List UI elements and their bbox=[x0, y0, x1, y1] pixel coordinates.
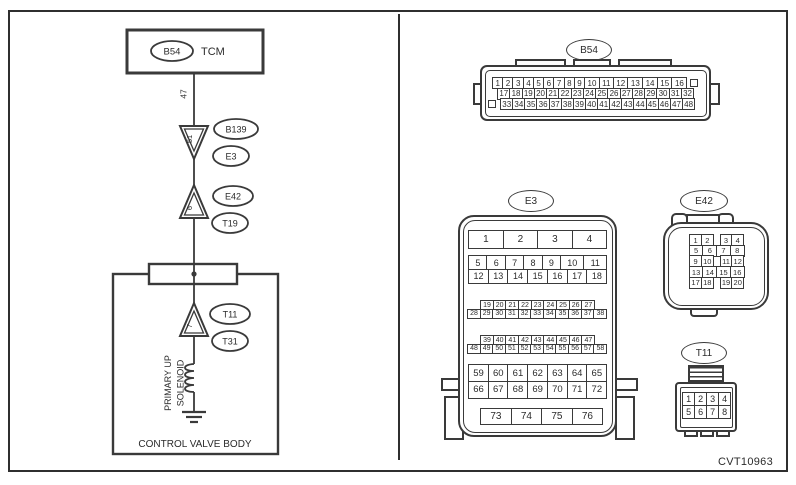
pin-4: 4 bbox=[572, 230, 608, 249]
pin-75: 75 bbox=[541, 408, 573, 425]
pin-61: 61 bbox=[507, 364, 528, 382]
pin-12: 12 bbox=[468, 269, 489, 284]
t11-view-label: T11 bbox=[696, 348, 713, 359]
t11-pin-row-2: 5678 bbox=[682, 405, 730, 419]
pin-76: 76 bbox=[572, 408, 604, 425]
joint1-label-top: B139 bbox=[225, 125, 246, 135]
e3-pin-row-8: 59606162636465 bbox=[468, 364, 606, 382]
t11-connector-shell: 1234 5678 bbox=[675, 382, 737, 432]
pin-69: 69 bbox=[527, 381, 548, 399]
t11-view-label-oval: T11 bbox=[681, 342, 727, 364]
pin-3: 3 bbox=[537, 230, 573, 249]
pin-74: 74 bbox=[511, 408, 543, 425]
joint2-label-bottom: T19 bbox=[222, 219, 238, 229]
b54-view-label: B54 bbox=[580, 45, 598, 56]
pin-15: 15 bbox=[527, 269, 548, 284]
pin-65: 65 bbox=[586, 364, 607, 382]
pin-73: 73 bbox=[480, 408, 512, 425]
pin-18: 18 bbox=[586, 269, 607, 284]
e3-pin-row-1: 1234 bbox=[468, 230, 606, 249]
control-valve-body-box bbox=[113, 274, 278, 454]
b54-pin-row-3: 33343536373839404142434445464748 bbox=[488, 98, 694, 110]
pin-1: 1 bbox=[468, 230, 504, 249]
e3-pin-row-7: 4849505152535455565758 bbox=[467, 344, 606, 354]
solenoid-coil-icon bbox=[185, 364, 194, 392]
pin-67: 67 bbox=[488, 381, 509, 399]
tcm-label: TCM bbox=[201, 46, 225, 58]
joint2-label-top: E42 bbox=[225, 192, 241, 202]
pin-68: 68 bbox=[507, 381, 528, 399]
wiring-diagram-figure: B54 TCM 47 51 6 7 B139 E3 E42 T19 T11 T3… bbox=[0, 0, 796, 485]
e42-connector-shell: 1234 5678 9101112 13141516 17181920 bbox=[663, 222, 769, 310]
pin-16: 16 bbox=[547, 269, 568, 284]
pin-58: 58 bbox=[593, 344, 607, 354]
tcm-box bbox=[127, 30, 263, 73]
figure-code: CVT10963 bbox=[718, 456, 773, 468]
tcm-pin-number: 47 bbox=[179, 89, 189, 99]
joint1-pin-number: 51 bbox=[185, 135, 194, 143]
joint-connector-2-icon bbox=[180, 185, 208, 218]
tcm-connector-label: B54 bbox=[164, 47, 181, 58]
joint2-pin-number: 6 bbox=[185, 206, 194, 210]
pin-8: 8 bbox=[718, 405, 731, 419]
diagram-frame: B54 TCM 47 51 6 7 B139 E3 E42 T19 T11 T3… bbox=[8, 10, 788, 472]
pin-13: 13 bbox=[488, 269, 509, 284]
joint3-pin-number: 7 bbox=[185, 324, 194, 328]
solenoid-label-line2: SOLENOID bbox=[176, 359, 186, 406]
pin-70: 70 bbox=[547, 381, 568, 399]
joint1-label-bottom: E3 bbox=[225, 152, 236, 162]
e3-view-label: E3 bbox=[525, 196, 537, 207]
b54-connector-shell: 12345678910111213141516 1718192021222324… bbox=[480, 65, 711, 121]
pin-2: 2 bbox=[503, 230, 539, 249]
pin-48: 48 bbox=[682, 98, 695, 110]
e3-pin-row-3: 12131415161718 bbox=[468, 269, 606, 284]
pin-14: 14 bbox=[507, 269, 528, 284]
solenoid-label-line1: PRIMARY UP bbox=[163, 355, 173, 411]
pin-62: 62 bbox=[527, 364, 548, 382]
junction-dot bbox=[191, 271, 196, 276]
e3-mount-leg bbox=[615, 396, 635, 440]
key-slot bbox=[488, 100, 496, 108]
joint-connector-3-icon bbox=[180, 303, 208, 336]
e3-pin-row-9: 66676869707172 bbox=[468, 381, 606, 399]
ground-icon bbox=[182, 412, 206, 422]
pin-60: 60 bbox=[488, 364, 509, 382]
pin-72: 72 bbox=[586, 381, 607, 399]
key-slot bbox=[690, 79, 698, 87]
pin-66: 66 bbox=[468, 381, 489, 399]
pin-71: 71 bbox=[567, 381, 588, 399]
pin-17: 17 bbox=[567, 269, 588, 284]
b54-view-label-oval: B54 bbox=[566, 39, 612, 61]
e3-view-label-oval: E3 bbox=[508, 190, 554, 212]
control-valve-body-label: CONTROL VALVE BODY bbox=[138, 439, 252, 450]
panel-divider bbox=[398, 14, 400, 460]
joint3-label-top: T11 bbox=[223, 310, 238, 320]
pin-gap bbox=[713, 277, 720, 289]
e42-view-label-oval: E42 bbox=[680, 190, 728, 212]
e3-pin-row-10: 73747576 bbox=[480, 408, 602, 425]
e3-pin-row-5: 2829303132333435363738 bbox=[467, 309, 606, 319]
pin-59: 59 bbox=[468, 364, 489, 382]
e3-shell-inner-outline bbox=[463, 220, 613, 433]
pin-38: 38 bbox=[593, 309, 607, 319]
e42-view-label: E42 bbox=[695, 196, 713, 207]
e42-pin-row-5: 17181920 bbox=[665, 277, 767, 289]
joint3-label-bottom: T31 bbox=[222, 337, 238, 347]
pin-63: 63 bbox=[547, 364, 568, 382]
pin-64: 64 bbox=[567, 364, 588, 382]
e3-connector-shell: 1234 567891011 12131415161718 1920212223… bbox=[458, 215, 617, 437]
pin-20: 20 bbox=[731, 277, 744, 289]
